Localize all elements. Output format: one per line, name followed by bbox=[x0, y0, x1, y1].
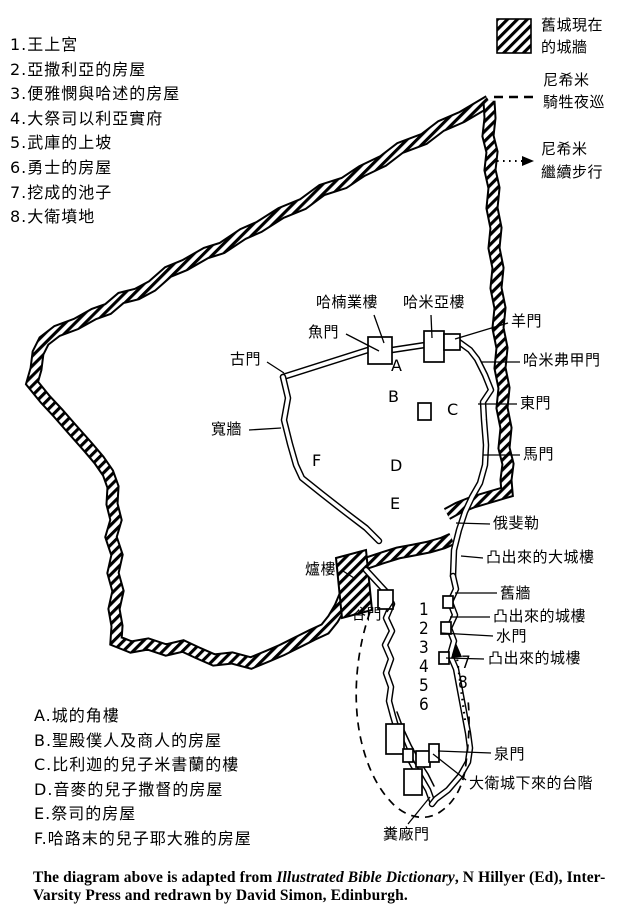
lettered-key-item-a: A.城的角樓 bbox=[34, 704, 252, 729]
map-letter-b: B bbox=[388, 387, 399, 406]
numbered-key-item-1: 1.王上宮 bbox=[10, 33, 180, 58]
map-number-5: 5 bbox=[419, 676, 429, 696]
caption-book-title: Illustrated Bible Dictionary bbox=[276, 869, 454, 886]
label-horse-gate: 馬門 bbox=[523, 446, 554, 463]
numbered-key-item-8: 8.大衛墳地 bbox=[10, 205, 180, 230]
label-hammeah-tower: 哈米亞樓 bbox=[403, 294, 465, 311]
legend-wall-label-line1: 舊城現在 bbox=[541, 17, 603, 34]
legend-walk-label-line1: 尼希米 bbox=[541, 141, 588, 158]
map-number-8: 8 bbox=[458, 673, 468, 693]
lettered-key-item-f: F.哈路末的兒子耶大雅的房屋 bbox=[34, 827, 252, 852]
map-number-4: 4 bbox=[419, 657, 429, 677]
map-number-1: 1 bbox=[419, 600, 429, 620]
label-projecting-tower-lower: 凸出來的城樓 bbox=[488, 650, 581, 667]
label-old-wall: 舊牆 bbox=[500, 585, 531, 602]
legend-wall-swatch bbox=[497, 19, 531, 53]
spur-building-2 bbox=[403, 749, 413, 762]
legend-walk-label-line2: 繼續步行 bbox=[541, 164, 603, 181]
label-old-gate: 古門 bbox=[230, 351, 261, 368]
lettered-key-item-c: C.比利迦的兒子米書蘭的樓 bbox=[34, 753, 252, 778]
numbered-key-item-2: 2.亞撒利亞的房屋 bbox=[10, 58, 180, 83]
label-dung-gate: 糞廠門 bbox=[383, 826, 430, 843]
numbered-key-item-5: 5.武庫的上坡 bbox=[10, 131, 180, 156]
map-number-3: 3 bbox=[419, 638, 429, 658]
label-water-gate: 水門 bbox=[496, 628, 527, 645]
legend-ride-label-line2: 騎牲夜巡 bbox=[543, 94, 605, 111]
label-hammiphkad-gate: 哈米弗甲門 bbox=[523, 352, 601, 369]
leader-great-projecting-tower bbox=[461, 556, 483, 558]
lettered-key-item-b: B.聖殿僕人及商人的房屋 bbox=[34, 729, 252, 754]
map-letter-f: F bbox=[312, 451, 321, 470]
leader-steps bbox=[433, 754, 466, 780]
leader-fountain-gate bbox=[438, 751, 491, 753]
map-letter-d: D bbox=[390, 456, 402, 475]
hammeah-tower-shape bbox=[424, 331, 444, 362]
leader-broad-wall bbox=[249, 428, 281, 430]
label-ophel: 俄斐勒 bbox=[493, 515, 540, 532]
label-valley-gate: 谷門 bbox=[351, 606, 382, 623]
label-great-projecting-tower: 凸出來的大城樓 bbox=[486, 549, 595, 566]
label-east-gate: 東門 bbox=[520, 395, 551, 412]
lettered-key-item-e: E.祭司的房屋 bbox=[34, 802, 252, 827]
numbered-key-list: 1.王上宮 2.亞撒利亞的房屋 3.便雅憫與哈述的房屋 4.大祭司以利亞實府 5… bbox=[10, 33, 180, 230]
map-letter-e: E bbox=[390, 494, 400, 513]
spur-building-1 bbox=[386, 724, 404, 754]
leader-old-gate bbox=[267, 362, 284, 373]
numbered-key-item-7: 7.挖成的池子 bbox=[10, 181, 180, 206]
spur-building-3 bbox=[416, 751, 430, 767]
numbered-key-item-4: 4.大祭司以利亞實府 bbox=[10, 107, 180, 132]
map-number-2: 2 bbox=[419, 619, 429, 639]
legend-arrowhead bbox=[522, 156, 534, 166]
sheep-gate-shape bbox=[444, 334, 460, 350]
label-furnace-tower: 爐樓 bbox=[305, 561, 336, 578]
label-sheep-gate: 羊門 bbox=[511, 313, 542, 330]
lettered-key-list: A.城的角樓 B.聖殿僕人及商人的房屋 C.比利迦的兒子米書蘭的樓 D.音麥的兒… bbox=[34, 704, 252, 852]
map-letter-c: C bbox=[447, 400, 458, 419]
label-projecting-tower-upper: 凸出來的城樓 bbox=[493, 608, 586, 625]
hananel-tower-shape bbox=[368, 337, 392, 364]
map-letter-a: A bbox=[391, 356, 402, 375]
label-fountain-gate: 泉門 bbox=[494, 746, 525, 763]
label-fish-gate: 魚門 bbox=[308, 324, 339, 341]
legend-symbols bbox=[494, 19, 534, 166]
label-hananel-tower: 哈楠業樓 bbox=[316, 294, 378, 311]
numbered-key-item-3: 3.便雅憫與哈述的房屋 bbox=[10, 82, 180, 107]
caption-text-before: The diagram above is adapted from bbox=[33, 869, 276, 886]
spur-building-4 bbox=[404, 769, 422, 795]
label-steps-city-of-david: 大衛城下來的台階 bbox=[469, 775, 593, 792]
meshullam-building-shape bbox=[418, 403, 431, 420]
diagram-page: 舊城現在 的城牆 尼希米 騎牲夜巡 尼希米 繼續步行 1.王上宮 2.亞撒利亞的… bbox=[0, 0, 635, 921]
lettered-key-item-d: D.音麥的兒子撒督的房屋 bbox=[34, 778, 252, 803]
map-number-7: 7 bbox=[461, 653, 471, 673]
legend-wall-label-line2: 的城牆 bbox=[541, 39, 588, 56]
legend-ride-label-line1: 尼希米 bbox=[543, 72, 590, 89]
fountain-gate-shape bbox=[429, 744, 439, 762]
label-broad-wall: 寬牆 bbox=[211, 421, 242, 438]
leader-dung-gate bbox=[408, 797, 430, 824]
numbered-key-item-6: 6.勇士的房屋 bbox=[10, 156, 180, 181]
map-number-6: 6 bbox=[419, 695, 429, 715]
projecting-tower-shape-2 bbox=[441, 622, 451, 634]
projecting-tower-shape-1 bbox=[443, 596, 453, 608]
caption: The diagram above is adapted from Illust… bbox=[33, 869, 619, 904]
